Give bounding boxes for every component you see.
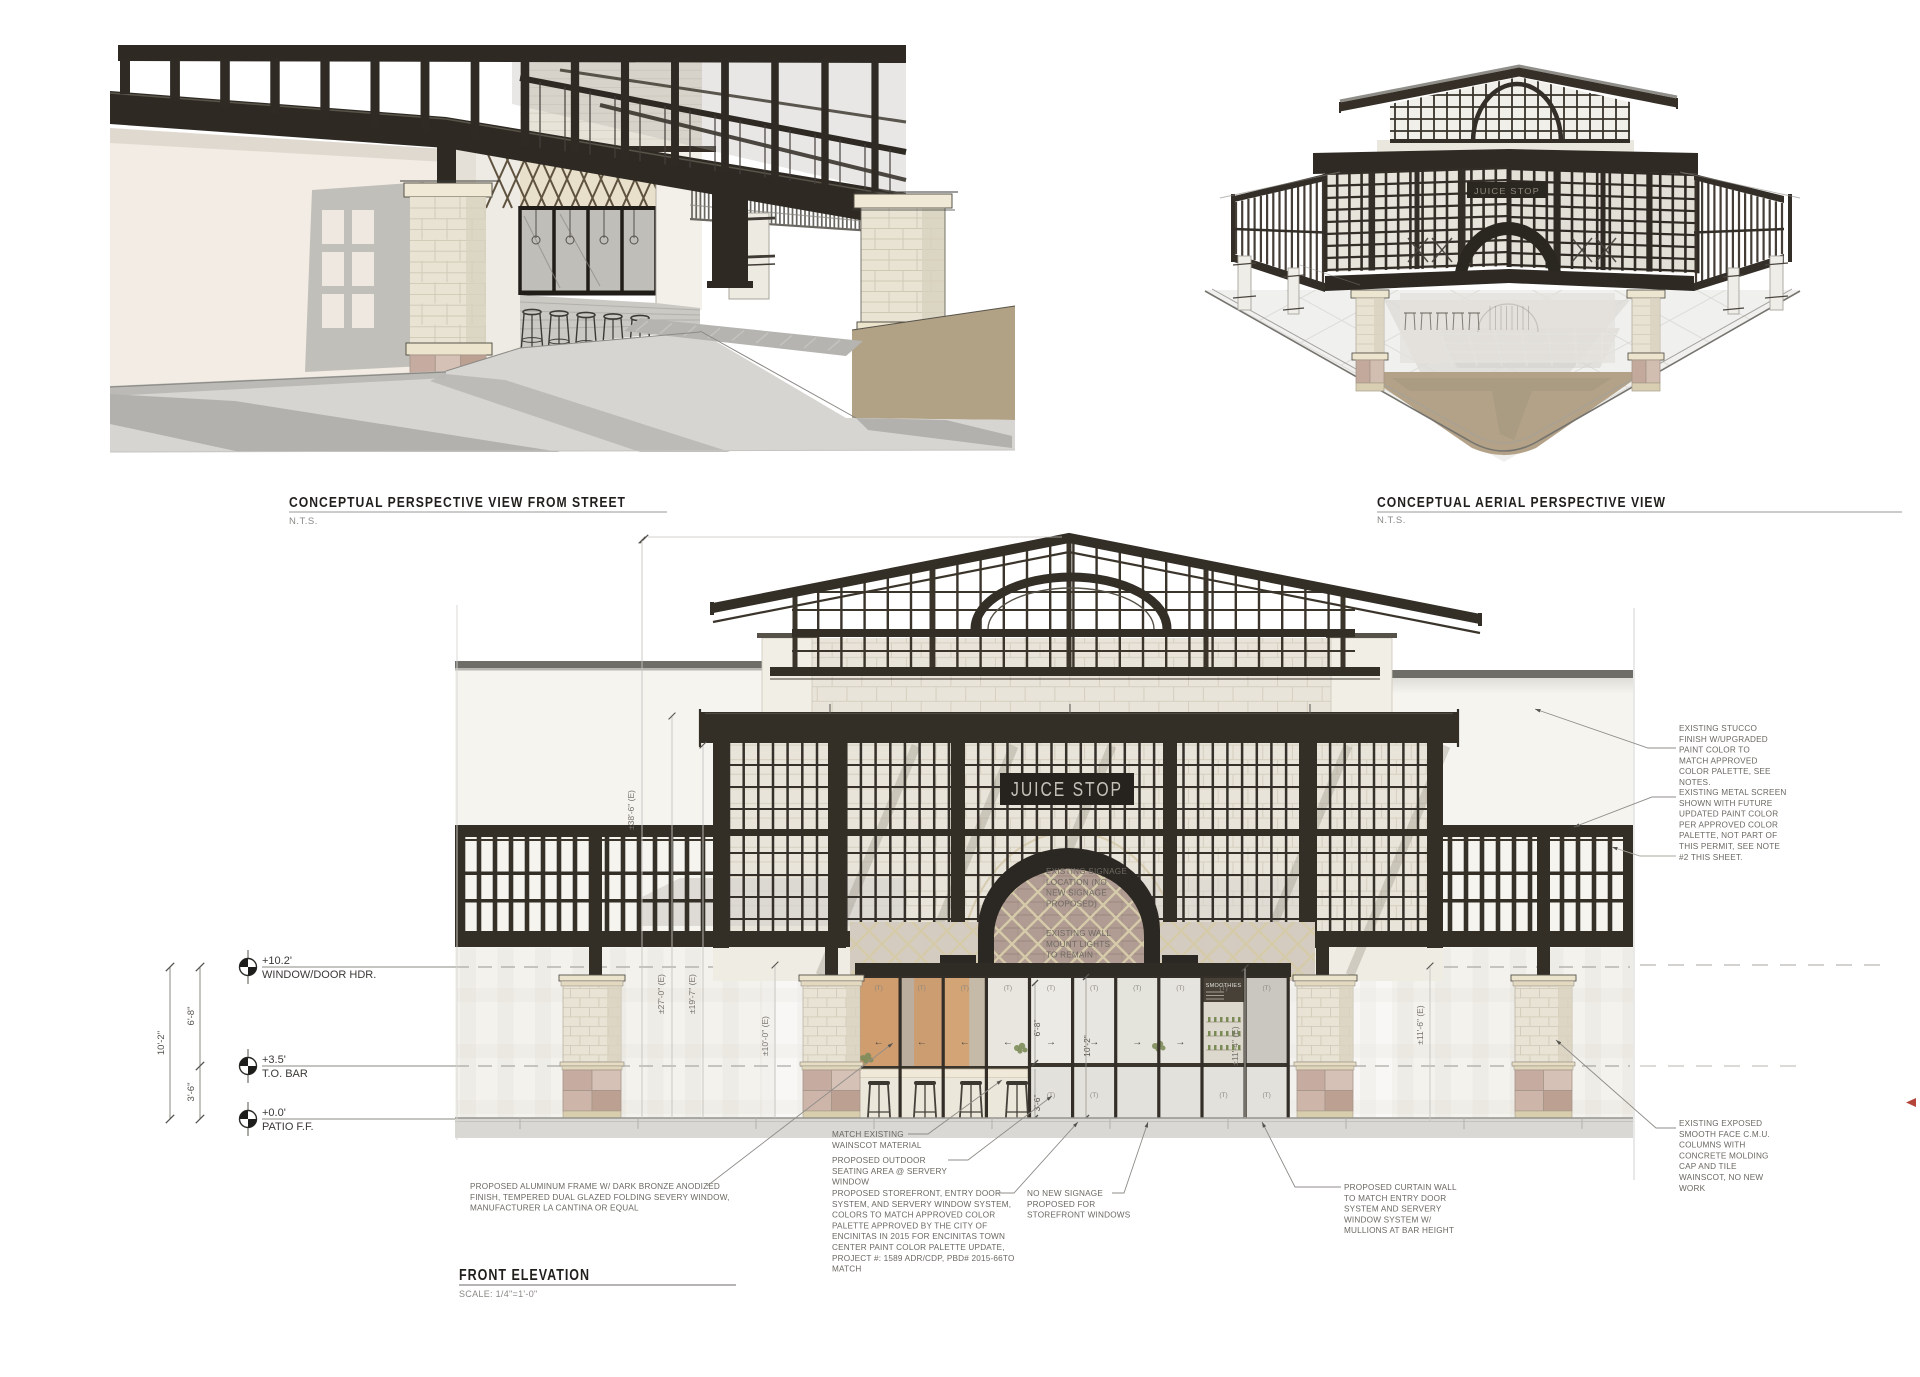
svg-text:NOTES.: NOTES. xyxy=(1679,778,1711,787)
svg-text:WORK: WORK xyxy=(1679,1184,1706,1193)
svg-text:LOCATION (NO: LOCATION (NO xyxy=(1046,878,1107,887)
svg-text:PALETTE, NOT PART OF: PALETTE, NOT PART OF xyxy=(1679,831,1777,840)
svg-text:MULLIONS AT BAR HEIGHT: MULLIONS AT BAR HEIGHT xyxy=(1344,1226,1454,1235)
svg-text:NO NEW SIGNAGE: NO NEW SIGNAGE xyxy=(1027,1189,1103,1198)
svg-text:FRONT ELEVATION: FRONT ELEVATION xyxy=(459,1267,590,1284)
svg-text:←: ← xyxy=(1003,1037,1013,1048)
svg-text:WAINSCOT, NO NEW: WAINSCOT, NO NEW xyxy=(1679,1173,1763,1182)
svg-text:SCALE: 1/4"=1'-0": SCALE: 1/4"=1'-0" xyxy=(459,1289,538,1299)
svg-text:(T): (T) xyxy=(961,985,969,992)
svg-text:T.O. BAR: T.O. BAR xyxy=(262,1068,308,1080)
svg-text:STOREFRONT WINDOWS: STOREFRONT WINDOWS xyxy=(1027,1211,1131,1220)
svg-text:EXISTING WALL: EXISTING WALL xyxy=(1046,929,1111,938)
svg-text:→: → xyxy=(1132,1037,1142,1048)
svg-text:PROJECT #: 1589 ADR/CDP, PBD#: PROJECT #: 1589 ADR/CDP, PBD# 2015-66TO xyxy=(832,1254,1015,1263)
svg-text:PALETTE APPROVED BY THE CITY O: PALETTE APPROVED BY THE CITY OF xyxy=(832,1221,987,1230)
svg-text:SEATING AREA @ SERVERY: SEATING AREA @ SERVERY xyxy=(832,1167,947,1176)
svg-text:±27'-0" (E): ±27'-0" (E) xyxy=(656,974,666,1014)
svg-text:CONCEPTUAL AERIAL PERSPECTIVE: CONCEPTUAL AERIAL PERSPECTIVE VIEW xyxy=(1377,495,1666,511)
svg-text:WAINSCOT MATERIAL: WAINSCOT MATERIAL xyxy=(832,1141,922,1150)
svg-text:CONCRETE MOLDING: CONCRETE MOLDING xyxy=(1679,1151,1769,1160)
svg-text:(T): (T) xyxy=(918,985,926,992)
svg-text:PATIO F.F.: PATIO F.F. xyxy=(262,1121,314,1133)
svg-text:SHOWN WITH FUTURE: SHOWN WITH FUTURE xyxy=(1679,799,1773,808)
svg-text:±11'-4" (E): ±11'-4" (E) xyxy=(1230,1026,1240,1066)
svg-text:(T): (T) xyxy=(1004,985,1012,992)
svg-text:(T): (T) xyxy=(1219,985,1227,992)
svg-text:MATCH APPROVED: MATCH APPROVED xyxy=(1679,756,1758,765)
svg-text:PER APPROVED COLOR: PER APPROVED COLOR xyxy=(1679,820,1778,829)
svg-text:(T): (T) xyxy=(1047,985,1055,992)
svg-text:3'-6": 3'-6" xyxy=(186,1083,197,1102)
svg-text:10'-2": 10'-2" xyxy=(1082,1035,1092,1057)
svg-text:EXISTING EXPOSED: EXISTING EXPOSED xyxy=(1679,1119,1762,1128)
svg-text:PROPOSED ALUMINUM FRAME W/ DAR: PROPOSED ALUMINUM FRAME W/ DARK BRONZE A… xyxy=(470,1182,720,1191)
svg-text:+10.2': +10.2' xyxy=(262,955,292,967)
svg-text:EXISTING METAL SCREEN: EXISTING METAL SCREEN xyxy=(1679,788,1786,797)
svg-text:JUICE STOP: JUICE STOP xyxy=(1474,186,1540,196)
svg-text:(T): (T) xyxy=(1262,985,1270,992)
svg-text:(T): (T) xyxy=(1133,985,1141,992)
svg-text:SYSTEM AND SERVERY: SYSTEM AND SERVERY xyxy=(1344,1205,1442,1214)
svg-text:EXISTING STUCCO: EXISTING STUCCO xyxy=(1679,724,1757,733)
svg-text:→: → xyxy=(1046,1037,1056,1048)
svg-text:←: ← xyxy=(917,1037,927,1048)
svg-text:THIS PERMIT, SEE NOTE: THIS PERMIT, SEE NOTE xyxy=(1679,842,1780,851)
svg-text:±38'-6" (E): ±38'-6" (E) xyxy=(626,790,636,830)
svg-text:6'-8": 6'-8" xyxy=(1032,1020,1042,1037)
svg-text:6'-8": 6'-8" xyxy=(186,1007,197,1026)
svg-text:MATCH: MATCH xyxy=(832,1265,862,1274)
svg-text:WINDOW/DOOR HDR.: WINDOW/DOOR HDR. xyxy=(262,969,376,981)
svg-text:#2 THIS SHEET.: #2 THIS SHEET. xyxy=(1679,853,1743,862)
svg-text:CONCEPTUAL PERSPECTIVE VIEW FR: CONCEPTUAL PERSPECTIVE VIEW FROM STREET xyxy=(289,495,626,511)
svg-text:FINISH W/UPGRADED: FINISH W/UPGRADED xyxy=(1679,735,1768,744)
svg-text:N.T.S.: N.T.S. xyxy=(289,516,318,527)
svg-text:←: ← xyxy=(960,1037,970,1048)
svg-text:←: ← xyxy=(874,1037,884,1048)
svg-text:UPDATED PAINT COLOR: UPDATED PAINT COLOR xyxy=(1679,810,1778,819)
svg-text:±10'-0" (E): ±10'-0" (E) xyxy=(760,1016,770,1056)
svg-text:COLUMNS WITH: COLUMNS WITH xyxy=(1679,1141,1746,1150)
svg-text:TO MATCH ENTRY DOOR: TO MATCH ENTRY DOOR xyxy=(1344,1194,1446,1203)
svg-text:NEW SIGNAGE: NEW SIGNAGE xyxy=(1046,889,1107,898)
svg-text:MOUNT LIGHTS: MOUNT LIGHTS xyxy=(1046,940,1110,949)
svg-text:3'-6": 3'-6" xyxy=(1032,1095,1042,1112)
svg-text:+0.0': +0.0' xyxy=(262,1107,286,1119)
svg-text:(T): (T) xyxy=(1090,985,1098,992)
svg-text:SMOOTH FACE C.M.U.: SMOOTH FACE C.M.U. xyxy=(1679,1130,1770,1139)
svg-text:JUICE STOP: JUICE STOP xyxy=(1011,779,1123,801)
svg-text:PROPOSED FOR: PROPOSED FOR xyxy=(1027,1200,1095,1209)
svg-text:CAP AND TILE: CAP AND TILE xyxy=(1679,1162,1737,1171)
svg-text:PAINT COLOR TO: PAINT COLOR TO xyxy=(1679,746,1750,755)
svg-text:PROPOSED OUTDOOR: PROPOSED OUTDOOR xyxy=(832,1156,926,1165)
svg-text:→: → xyxy=(1175,1037,1185,1048)
svg-text:+3.5': +3.5' xyxy=(262,1054,286,1066)
svg-text:PROPOSED STOREFRONT, ENTRY DOO: PROPOSED STOREFRONT, ENTRY DOOR xyxy=(832,1189,1001,1198)
svg-text:(T): (T) xyxy=(1176,985,1184,992)
svg-text:(T): (T) xyxy=(1262,1092,1270,1099)
svg-text:WINDOW: WINDOW xyxy=(832,1178,869,1187)
svg-text:PROPOSED): PROPOSED) xyxy=(1046,899,1097,908)
svg-text:10'-2": 10'-2" xyxy=(156,1031,167,1055)
svg-text:(T): (T) xyxy=(874,985,882,992)
svg-text:SYSTEM, AND SERVERY WINDOW SYS: SYSTEM, AND SERVERY WINDOW SYSTEM, xyxy=(832,1200,1011,1209)
svg-text:TO REMAIN: TO REMAIN xyxy=(1046,951,1093,960)
svg-text:COLOR PALETTE, SEE: COLOR PALETTE, SEE xyxy=(1679,767,1771,776)
svg-text:±19'-7" (E): ±19'-7" (E) xyxy=(687,974,697,1014)
svg-text:PROPOSED CURTAIN WALL: PROPOSED CURTAIN WALL xyxy=(1344,1183,1457,1192)
svg-text:EXISTING SIGNAGE: EXISTING SIGNAGE xyxy=(1046,867,1127,876)
svg-text:CENTER PAINT COLOR PALETTE UPD: CENTER PAINT COLOR PALETTE UPDATE, xyxy=(832,1243,1005,1252)
svg-text:ENCINITAS IN 2015 FOR ENCINITA: ENCINITAS IN 2015 FOR ENCINITAS TOWN xyxy=(832,1232,1005,1241)
svg-text:COLORS TO MATCH APPROVED COLOR: COLORS TO MATCH APPROVED COLOR xyxy=(832,1211,995,1220)
svg-text:WINDOW SYSTEM W/: WINDOW SYSTEM W/ xyxy=(1344,1215,1432,1224)
svg-text:MATCH EXISTING: MATCH EXISTING xyxy=(832,1130,904,1139)
svg-text:FINISH, TEMPERED DUAL GLAZED F: FINISH, TEMPERED DUAL GLAZED FOLDING SEV… xyxy=(470,1193,730,1202)
svg-text:(T): (T) xyxy=(1090,1092,1098,1099)
svg-text:N.T.S.: N.T.S. xyxy=(1377,515,1406,526)
svg-text:(T): (T) xyxy=(1219,1092,1227,1099)
svg-text:±11'-6" (E): ±11'-6" (E) xyxy=(1415,1005,1425,1045)
svg-text:MANUFACTURER LA CANTINA OR EQU: MANUFACTURER LA CANTINA OR EQUAL xyxy=(470,1204,639,1213)
